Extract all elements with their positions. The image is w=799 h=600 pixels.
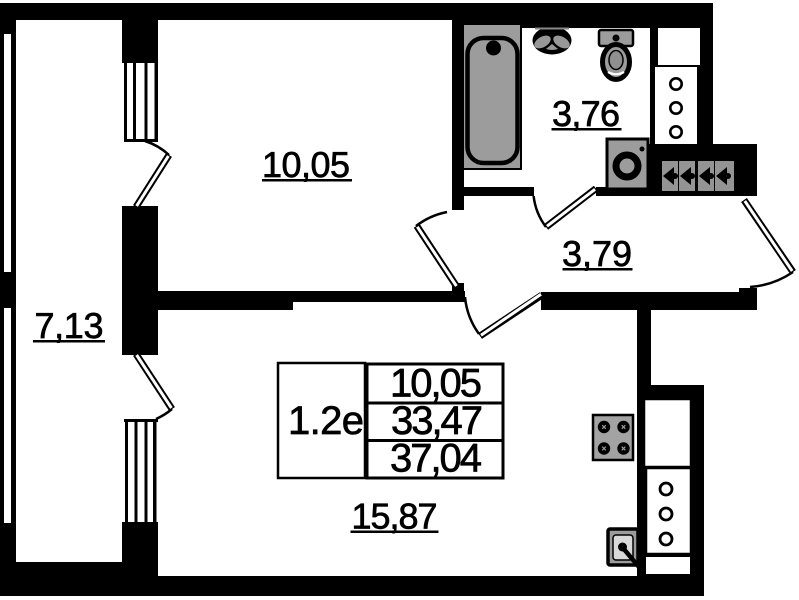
svg-text:3,79: 3,79	[562, 233, 632, 274]
svg-text:37,04: 37,04	[390, 437, 482, 481]
svg-text:10,05: 10,05	[262, 144, 350, 185]
svg-text:3,76: 3,76	[552, 93, 620, 134]
svg-text:15,87: 15,87	[352, 496, 438, 537]
svg-text:1.2e: 1.2e	[288, 399, 364, 443]
svg-text:7,13: 7,13	[35, 305, 104, 346]
